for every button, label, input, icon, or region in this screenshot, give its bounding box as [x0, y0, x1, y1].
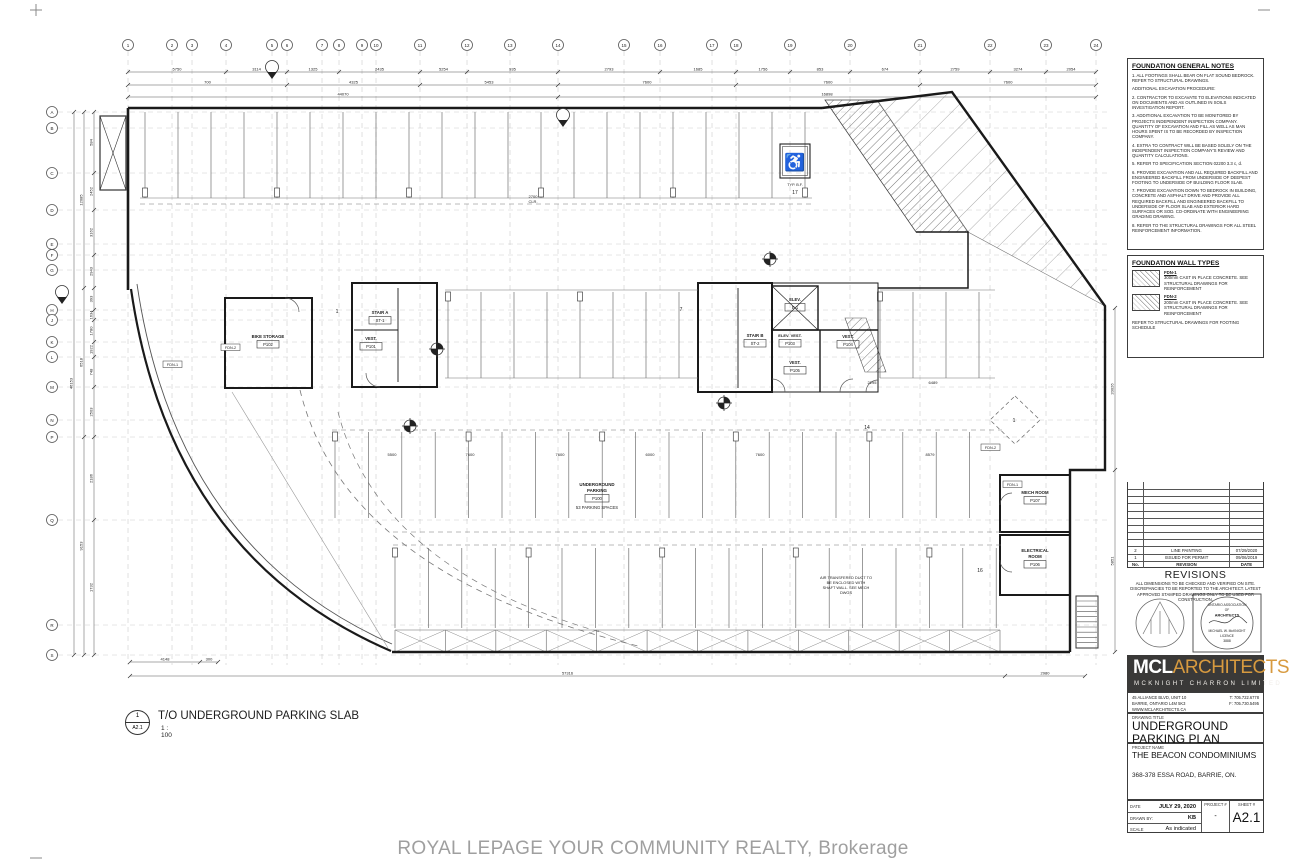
dimension-text: 1756: [759, 67, 769, 72]
dimension-text: 748: [89, 368, 94, 375]
column-marker: [867, 432, 872, 441]
dimension-text: 3162: [89, 227, 94, 237]
svg-text:FDN-2: FDN-2: [225, 346, 236, 350]
scale-value: As indicated: [1166, 826, 1199, 832]
revision-row: 2 LINE PAINTING 07/29/2020: [1128, 546, 1263, 553]
drawing-title-block: DRAWING TITLE UNDERGROUND PARKING PLAN: [1127, 713, 1264, 743]
grid-bubble-top-label: 17: [709, 43, 715, 48]
grid-bubble-top-label: 16: [657, 43, 663, 48]
interior-dimension-text: 8579: [926, 452, 936, 457]
dimension-text: 4148: [161, 657, 171, 662]
column-marker: [143, 188, 148, 197]
column-marker: [466, 432, 471, 441]
mech-room-label: MECH ROOM: [1021, 490, 1049, 495]
project-block: PROJECT NAME THE BEACON CONDOMINIUMS 368…: [1127, 743, 1264, 800]
view-title: T/O UNDERGROUND PARKING SLAB: [158, 710, 359, 722]
dimension-text: 2503: [89, 407, 94, 417]
firm-address: 45 ALLIANCE BLVD, UNIT 10 BARRIE, ONTARI…: [1132, 695, 1186, 710]
dimension-text: 935: [509, 67, 516, 72]
column-marker: [600, 432, 605, 441]
dimension-text: 584: [89, 138, 94, 145]
svg-text:P105: P105: [790, 368, 800, 373]
interior-dimension-text: 7600: [466, 452, 476, 457]
dimension-text: 2435: [375, 67, 385, 72]
dimension-text: 2452: [89, 186, 94, 196]
grid-bubble-top-label: 15: [621, 43, 627, 48]
logo-mcl: MCL: [1133, 657, 1173, 678]
column-marker: [526, 548, 531, 557]
grid-bubble-left-label: J: [51, 318, 53, 323]
wall-type-fdn2: FDN-2 200mm CAST IN PLACE CONCRETE. SEE …: [1132, 294, 1259, 315]
dimension-text: 1685: [694, 67, 704, 72]
dimension-text: 2980: [1041, 671, 1051, 676]
fdn2-hatch-swatch: [1132, 294, 1160, 311]
svg-text:E-1: E-1: [792, 305, 799, 310]
grid-bubble-left-label: K: [50, 340, 53, 345]
column-marker: [671, 188, 676, 197]
project-name: THE BEACON CONDOMINIUMS: [1132, 750, 1259, 760]
svg-text:3888: 3888: [1223, 639, 1231, 643]
sheet-info-table: DATE JULY 29, 2020 DRAWN BY: KB SCALE As…: [1127, 800, 1264, 833]
dimension-text: 2054: [1067, 67, 1077, 72]
grid-bubble-top-label: 23: [1043, 43, 1049, 48]
bike-storage-label: BIKE STORAGE: [252, 334, 285, 339]
dimension-text: 46153: [69, 377, 74, 389]
date-value: JULY 29, 2020: [1159, 804, 1199, 810]
room-labels: UNDERGROUND PARKING P100 53 PARKING SPAC…: [252, 297, 1049, 568]
wall-types-title: FOUNDATION WALL TYPES: [1132, 260, 1259, 267]
interior-dimension-text: 5500: [388, 452, 398, 457]
revision-header-row: No. REVISION DATE: [1128, 561, 1263, 568]
grid-bubble-left-label: N: [50, 418, 53, 423]
grid-bubble-top-label: 19: [787, 43, 793, 48]
drawn-by-value: KB: [1188, 815, 1199, 821]
column-marker: [539, 188, 544, 197]
svg-text:LICENCE: LICENCE: [1220, 634, 1234, 638]
revisions-table: 2 LINE PAINTING 07/29/2020 1 ISSUED FOR …: [1127, 482, 1264, 568]
dimension-text: 1922: [89, 344, 94, 354]
sheet-number: A2.1: [1230, 810, 1263, 825]
drawing-sheet: 123456789101112131415161718192021222324A…: [0, 0, 1300, 867]
logo-subtitle: MCKNIGHT CHARRON LIMITED: [1128, 679, 1263, 687]
wheelchair-icon: ♿: [784, 152, 805, 172]
column-marker: [407, 188, 412, 197]
stall-count-17: 17: [792, 190, 798, 196]
wall-type-fdn1: FDN-1 300mm CAST IN PLACE CONCRETE. SEE …: [1132, 270, 1259, 291]
dimension-text: 4325: [349, 80, 359, 85]
grid-bubble-top-label: 24: [1093, 43, 1099, 48]
grid-bubble-top-label: 14: [555, 43, 561, 48]
column-marker: [578, 292, 583, 301]
column-marker: [446, 292, 451, 301]
interior-dimension-text: 7600: [756, 452, 766, 457]
dimension-text: 853: [817, 67, 824, 72]
dimension-text: 7600: [1004, 80, 1014, 85]
firm-address-block: 45 ALLIANCE BLVD, UNIT 10 BARRIE, ONTARI…: [1127, 692, 1264, 713]
electrical-room-label: ELECTRICAL: [1021, 548, 1049, 553]
stall-count-7: 7: [680, 307, 683, 313]
dimension-text: 393: [89, 295, 94, 302]
dimension-text: 57316: [562, 671, 574, 676]
detail-reference-bubble: 1 A2.1: [125, 710, 150, 735]
fdn1-hatch-swatch: [1132, 270, 1160, 287]
parking-room-tag: P100: [592, 496, 602, 501]
grid-bubble-left-label: A: [50, 110, 53, 115]
column-marker: [927, 548, 932, 557]
revisions-title: REVISIONS: [1127, 569, 1264, 581]
dimension-text: 3114: [252, 67, 261, 72]
stair-a-core: [352, 283, 437, 387]
stall-count-14: 14: [864, 425, 870, 431]
dimension-text: 5254: [439, 67, 449, 72]
dimension-text: 5453: [485, 80, 495, 85]
view-scale: 1 : 100: [161, 725, 172, 739]
grid-bubble-left-label: M: [50, 385, 54, 390]
project-number: -: [1202, 813, 1229, 820]
dimension-text: 1634: [89, 310, 94, 320]
vest-b-label: VEST.: [842, 334, 853, 339]
dimension-text: 674: [882, 67, 889, 72]
column-marker: [660, 548, 665, 557]
dimension-text: 2759: [951, 67, 961, 72]
dimension-text: 2943: [89, 266, 94, 276]
grid-bubble-top-label: 13: [507, 43, 513, 48]
dimension-text: 20026: [1110, 383, 1115, 395]
dimension-text: 44070: [337, 92, 349, 97]
column-marker: [333, 432, 338, 441]
svg-text:ONTARIO ASSOCIATION: ONTARIO ASSOCIATION: [1208, 603, 1247, 607]
grid-bubble-left-label: Q: [50, 518, 54, 523]
svg-text:DWGS: DWGS: [840, 590, 853, 595]
typ-bf-label: TYP. B.F.: [787, 183, 803, 187]
elevator-label: ELEV.: [789, 297, 800, 302]
column-marker: [733, 432, 738, 441]
dimension-text: 2793: [605, 67, 615, 72]
drawing-title: UNDERGROUND PARKING PLAN: [1132, 720, 1259, 745]
oaa-stamp-text: ONTARIO ASSOCIATION OF ARCHITECTS MICHAE…: [1208, 603, 1247, 643]
sheet-corner-ticks: [30, 4, 1270, 858]
plan-annotations: AIR TRANSFERED DUCT TO BE ENCLOSED WITH …: [163, 194, 1022, 595]
architect-stamp: ONTARIO ASSOCIATION OF ARCHITECTS MICHAE…: [1127, 592, 1264, 654]
dimension-text: 7600: [643, 80, 653, 85]
grid-bubble-top-label: 11: [418, 43, 423, 48]
svg-text:OF: OF: [1225, 608, 1229, 612]
interior-dimension-text: 6489: [929, 380, 939, 385]
grid-bubble-left-label: E: [50, 242, 53, 247]
grid-bubble-top-label: 21: [917, 43, 923, 48]
brokerage-watermark: ROYAL LEPAGE YOUR COMMUNITY REALTY, Brok…: [393, 838, 913, 860]
firm-logo: MCLARCHITECTS MCKNIGHT CHARRON LIMITED: [1127, 655, 1264, 692]
firm-logo-sketch: [1143, 602, 1177, 634]
stall-count-1: 1: [336, 309, 339, 315]
stair-a-label: STAIR A: [372, 310, 389, 315]
dimension-text: 1780: [89, 326, 94, 336]
svg-text:CLR.: CLR.: [528, 199, 537, 204]
parking-room-name: UNDERGROUND: [579, 482, 614, 487]
foundation-wall-tags: FDN-1 FDN-2 FDN-2 FDN-1: [163, 344, 1022, 488]
svg-text:FDN-1: FDN-1: [167, 363, 178, 367]
dimension-text: 16898: [821, 92, 833, 97]
stall-count-16: 16: [977, 568, 983, 574]
svg-text:P101: P101: [366, 344, 376, 349]
grid-bubble-top-label: 18: [733, 43, 739, 48]
grid-bubble-top-label: 22: [987, 43, 993, 48]
revision-row: 1 ISSUED FOR PERMIT 09/06/2019: [1128, 554, 1263, 561]
vest-a-label: VEST.: [365, 336, 376, 341]
keynote-number: 1: [1013, 418, 1016, 424]
dimension-text: 5750: [173, 67, 183, 72]
svg-text:ROOM: ROOM: [1028, 554, 1042, 559]
stair-b-label: STAIR B: [747, 333, 764, 338]
dimension-text: 1325: [309, 67, 319, 72]
notes-title: FOUNDATION GENERAL NOTES: [1132, 63, 1259, 70]
grid-bubble-left-label: F: [51, 253, 54, 258]
foundation-wall-types: FOUNDATION WALL TYPES FDN-1 300mm CAST I…: [1127, 255, 1264, 358]
grid-bubble-top-label: 20: [847, 43, 853, 48]
target-symbols: [402, 251, 778, 434]
dimension-text: 2186: [89, 473, 94, 483]
svg-text:MICHAEL W. McKNIGHT: MICHAEL W. McKNIGHT: [1208, 629, 1245, 633]
wall-types-footer: REFER TO STRUCTURAL DRAWINGS FOR FOOTING…: [1132, 320, 1259, 330]
dimension-text: 7600: [824, 80, 834, 85]
svg-text:P103: P103: [785, 341, 795, 346]
grid-bubble-left-label: B: [50, 126, 53, 131]
grid-bubble-left-label: G: [50, 268, 54, 273]
ladder-pit: [1076, 596, 1098, 648]
underground-parking-plan: 123456789101112131415161718192021222324A…: [0, 0, 1300, 867]
column-marker: [803, 188, 808, 197]
svg-text:FDN-1: FDN-1: [1007, 483, 1018, 487]
foundation-general-notes: FOUNDATION GENERAL NOTES 1. ALL FOOTINGS…: [1127, 58, 1264, 250]
elev-vest-label: ELEV. VEST.: [778, 333, 801, 338]
grid-bubble-left-label: S: [50, 653, 53, 658]
dimension-text: 6518: [79, 357, 84, 367]
vest-c-label: VEST.: [789, 360, 800, 365]
project-address: 368-378 ESSA ROAD, BARRIE, ON.: [1132, 772, 1259, 779]
dimension-text: 9153: [79, 541, 84, 551]
svg-text:P106: P106: [1030, 562, 1040, 567]
grid-bubble-left-label: P: [50, 435, 53, 440]
svg-text:ST-1: ST-1: [376, 318, 386, 323]
dimension-text: 12085: [79, 194, 84, 206]
column-marker: [275, 188, 280, 197]
interior-dimension-text: 7600: [556, 452, 566, 457]
svg-text:P102: P102: [263, 342, 273, 347]
dimension-text: 3274: [1014, 67, 1024, 72]
column-marker: [393, 548, 398, 557]
grid-bubble-top-label: 12: [464, 43, 470, 48]
parking-space-count: 53 PARKING SPACES: [576, 505, 618, 510]
dimension-text: 300: [206, 657, 213, 662]
grid-bubble-left-label: H: [50, 308, 53, 313]
svg-text:ST-2: ST-2: [751, 341, 761, 346]
aisle-lines: [140, 198, 1002, 648]
svg-text:P104: P104: [843, 342, 853, 347]
logo-architects: ARCHITECTS: [1173, 657, 1289, 678]
dimension-text: 5851: [1110, 556, 1115, 566]
svg-text:P107: P107: [1030, 498, 1040, 503]
interior-dimension-text: 6000: [646, 452, 656, 457]
column-marker: [793, 548, 798, 557]
svg-text:PARKING: PARKING: [587, 488, 608, 493]
dimension-text: 1732: [89, 582, 94, 592]
svg-text:FDN-2: FDN-2: [985, 446, 996, 450]
stair-shaft-topleft: [100, 116, 126, 190]
grid-bubble-top-label: 10: [373, 43, 379, 48]
dimension-text: 700: [204, 80, 211, 85]
firm-phone: T: 705.722.6778 F: 705.730.5495: [1229, 695, 1259, 710]
